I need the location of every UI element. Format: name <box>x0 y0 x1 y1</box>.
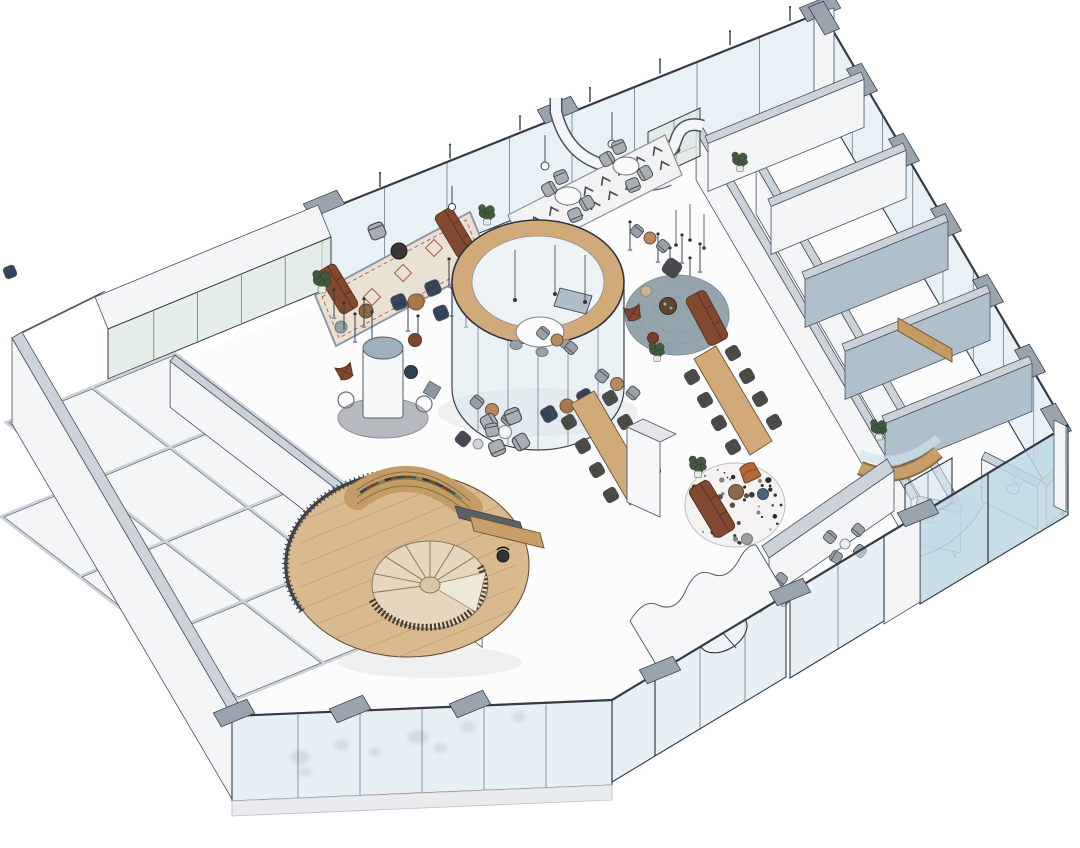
rust-pouf <box>648 333 659 344</box>
glass-fin-tip <box>519 115 521 117</box>
speckle <box>765 477 771 483</box>
glass-fin-tip <box>449 144 451 146</box>
candle-lamp-tip <box>688 256 691 259</box>
candle-lamp-base <box>332 317 337 319</box>
speckle <box>744 493 749 498</box>
candle-lamp-tip <box>698 242 701 245</box>
speckle <box>768 487 772 491</box>
candle-lamp-base <box>342 330 347 332</box>
candle-lamp-tip <box>628 220 631 223</box>
corner-post <box>1054 420 1066 512</box>
wall-cap <box>12 291 105 338</box>
speckle <box>724 472 726 474</box>
speckle <box>756 511 760 515</box>
basket-pouf <box>641 286 652 297</box>
candle-lamp-tip <box>656 232 659 235</box>
candle-lamp-base <box>656 261 661 263</box>
coffee-table <box>660 298 677 315</box>
candle-lamp-base <box>628 249 633 251</box>
candle-lamp-base <box>406 330 411 332</box>
speckle <box>780 504 783 507</box>
bistro-table <box>644 232 656 244</box>
speckle <box>727 477 729 479</box>
candle-lamp-tip <box>362 297 365 300</box>
speckle <box>776 523 779 526</box>
room-interior <box>472 236 604 328</box>
coffee-table <box>729 485 744 500</box>
speckle <box>729 478 731 480</box>
leather-pouf <box>409 334 422 347</box>
gray-pouf <box>742 534 753 545</box>
candle-lamp-base <box>698 271 703 273</box>
speckle <box>717 469 719 471</box>
round-table <box>555 187 581 205</box>
speckle <box>774 493 777 496</box>
candle-lamp-tip <box>342 301 345 304</box>
candle-lamp-base <box>362 326 367 328</box>
speckle <box>769 528 771 530</box>
speckle <box>761 516 763 518</box>
speckle <box>761 484 764 487</box>
bistro-table <box>551 334 563 346</box>
speckle <box>702 531 704 533</box>
floor-plan-rendering <box>0 0 1080 848</box>
candle-lamp-tip <box>332 288 335 291</box>
candle-lamp-tip <box>353 312 356 315</box>
speckle <box>773 514 778 519</box>
speckle <box>758 479 762 483</box>
glass-fin-tip <box>789 6 791 8</box>
glass-fin-tip <box>379 172 381 174</box>
navy-armchair <box>2 264 17 279</box>
floor-plan-canvas <box>0 0 1080 848</box>
candle-lamp-base <box>353 341 358 343</box>
round-table <box>499 426 512 439</box>
stair-newel <box>420 577 440 593</box>
white-column <box>627 427 660 517</box>
round-wood-table <box>408 294 424 310</box>
speckle <box>704 475 706 477</box>
bistro-table <box>611 378 624 391</box>
speckle <box>737 521 741 525</box>
column-top <box>363 337 403 359</box>
speckle <box>731 475 735 479</box>
speckle <box>737 541 740 544</box>
stool <box>510 341 522 350</box>
stool <box>536 348 548 357</box>
candle-lamp-tip <box>416 314 419 317</box>
task-chair <box>497 550 509 562</box>
speckle <box>743 498 746 501</box>
round-table <box>613 157 639 175</box>
lamp-shade <box>449 204 456 211</box>
navy-pouf <box>405 366 418 379</box>
coffee-table <box>391 243 407 259</box>
pendant-globe <box>541 162 549 170</box>
speckle <box>749 492 755 498</box>
speckle <box>719 477 724 482</box>
candle-lamp-tip <box>370 310 373 313</box>
speckle <box>733 536 738 541</box>
glass-fin-tip <box>729 30 731 32</box>
speckle <box>769 485 772 488</box>
candle-lamp-tip <box>447 257 450 260</box>
speckle <box>758 505 760 507</box>
blue-pouf <box>758 489 769 500</box>
speckle <box>730 502 735 507</box>
speckle <box>743 485 746 488</box>
glass-fin-tip <box>589 87 591 89</box>
speckle <box>771 504 774 507</box>
candle-lamp-tip <box>680 233 683 236</box>
glass-fin-tip <box>659 59 661 61</box>
